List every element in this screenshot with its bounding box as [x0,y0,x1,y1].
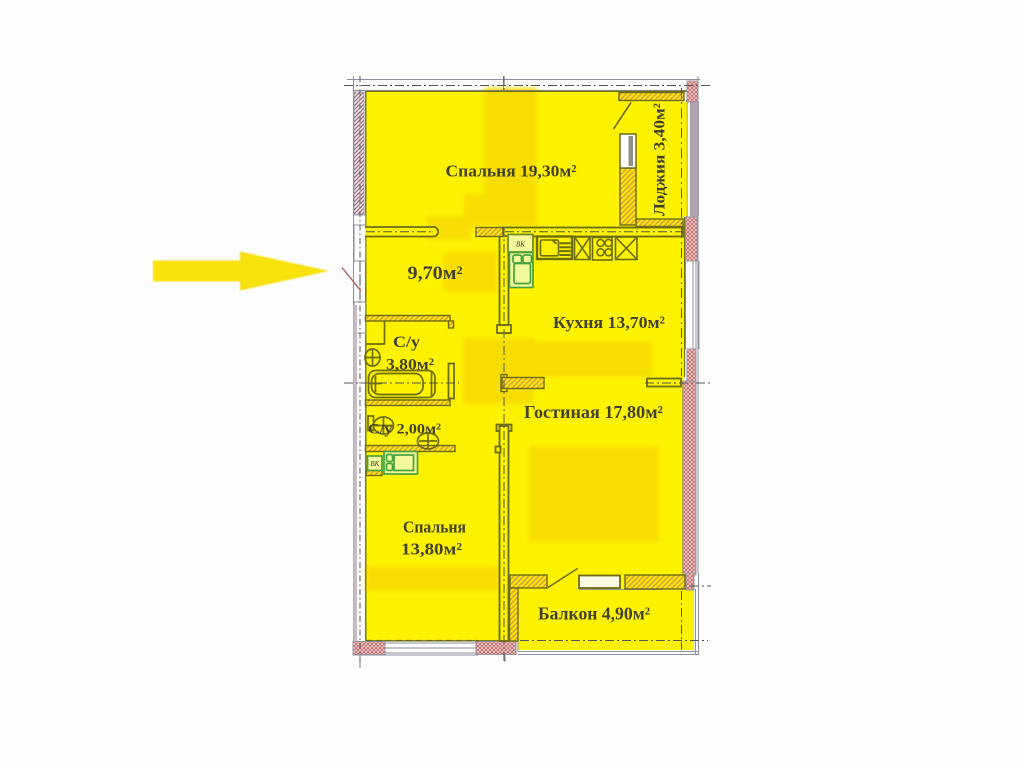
svg-text:Лоджия 3,40м²: Лоджия 3,40м² [652,103,669,216]
svg-text:Кухня 13,70м²: Кухня 13,70м² [553,313,665,332]
svg-text:9,70м²: 9,70м² [408,263,463,284]
svg-text:С/у: С/у [393,334,420,351]
svg-text:С/у 2,00м²: С/у 2,00м² [368,422,442,438]
svg-text:Балкон 4,90м²: Балкон 4,90м² [538,604,650,624]
svg-text:Спальня 19,30м²: Спальня 19,30м² [446,162,577,181]
svg-text:Спальня: Спальня [403,518,466,537]
svg-text:ВК: ВК [370,460,379,468]
svg-text:ВК: ВК [516,241,525,249]
svg-text:13,80м²: 13,80м² [401,540,462,559]
svg-text:Гостиная 17,80м²: Гостиная 17,80м² [524,402,663,422]
svg-text:3,80м²: 3,80м² [386,357,434,374]
